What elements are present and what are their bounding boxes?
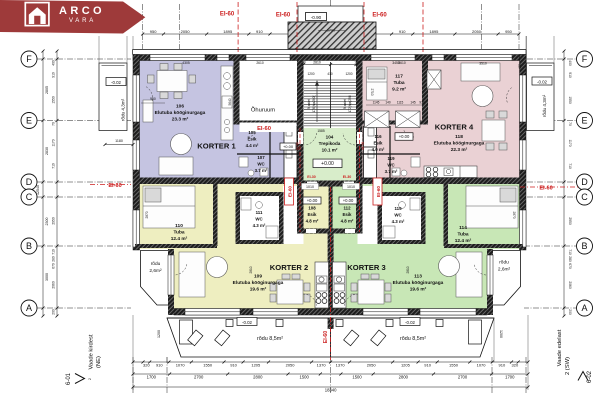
svg-text:E: E bbox=[26, 116, 32, 126]
svg-text:9.2 m²: 9.2 m² bbox=[392, 87, 406, 93]
svg-text:106: 106 bbox=[176, 104, 184, 110]
svg-text:1145: 1145 bbox=[373, 101, 380, 105]
svg-text:EI-60: EI-60 bbox=[257, 126, 271, 132]
svg-text:200: 200 bbox=[52, 309, 56, 315]
svg-text:1500: 1500 bbox=[299, 375, 309, 380]
svg-text:950: 950 bbox=[505, 29, 512, 34]
svg-text:Vaade kirdest: Vaade kirdest bbox=[89, 334, 95, 369]
svg-text:EI-60: EI-60 bbox=[276, 13, 291, 19]
svg-text:1010: 1010 bbox=[306, 185, 314, 189]
svg-text:470: 470 bbox=[136, 64, 140, 70]
svg-text:1010: 1010 bbox=[347, 185, 355, 189]
svg-text:Esik: Esik bbox=[307, 212, 317, 217]
svg-text:176(h)x280(: 176(h)x280( bbox=[312, 94, 316, 112]
svg-text:200: 200 bbox=[568, 309, 572, 315]
svg-text:400: 400 bbox=[52, 60, 56, 66]
svg-text:4.8 m²: 4.8 m² bbox=[306, 219, 319, 224]
svg-text:9 astet: 9 astet bbox=[343, 99, 347, 109]
svg-text:+0.00: +0.00 bbox=[343, 198, 354, 203]
svg-text:Esik: Esik bbox=[373, 141, 383, 146]
svg-text:KORTER 4: KORTER 4 bbox=[435, 123, 474, 132]
svg-text:3.7 m²: 3.7 m² bbox=[385, 169, 398, 174]
svg-text:A: A bbox=[26, 303, 32, 313]
svg-text:2710: 2710 bbox=[370, 88, 374, 95]
svg-text:1500: 1500 bbox=[352, 375, 362, 380]
svg-text:1070: 1070 bbox=[176, 363, 186, 368]
svg-text:-0.02: -0.02 bbox=[537, 79, 548, 84]
svg-text:400: 400 bbox=[568, 60, 572, 66]
svg-text:3000: 3000 bbox=[45, 273, 49, 281]
svg-text:910: 910 bbox=[52, 72, 56, 78]
svg-text:1115: 1115 bbox=[397, 101, 404, 105]
svg-text:+0.00: +0.00 bbox=[283, 144, 294, 149]
svg-text:1180: 1180 bbox=[115, 139, 123, 143]
svg-text:Esik: Esik bbox=[247, 137, 257, 142]
svg-text:410: 410 bbox=[327, 72, 333, 76]
svg-text:105: 105 bbox=[248, 130, 256, 135]
svg-text:+0.00: +0.00 bbox=[321, 161, 334, 167]
svg-text:2610: 2610 bbox=[398, 61, 406, 65]
svg-text:1205: 1205 bbox=[251, 363, 261, 368]
svg-text:Elutuba kööginurgaga: Elutuba kööginurgaga bbox=[233, 280, 284, 286]
svg-text:1200: 1200 bbox=[157, 330, 161, 338]
svg-text:23.3 m²: 23.3 m² bbox=[172, 117, 189, 123]
svg-text:rõdu: rõdu bbox=[499, 260, 509, 266]
svg-text:F: F bbox=[582, 54, 588, 64]
svg-text:1370: 1370 bbox=[317, 363, 327, 368]
svg-text:B: B bbox=[26, 241, 32, 251]
svg-text:2950: 2950 bbox=[52, 217, 56, 225]
svg-text:190: 190 bbox=[354, 60, 360, 64]
svg-text:Trepikoda: Trepikoda bbox=[319, 141, 341, 146]
svg-text:3.7 m²: 3.7 m² bbox=[255, 168, 268, 173]
svg-text:116: 116 bbox=[374, 134, 382, 139]
svg-text:rõdu 8,5m²: rõdu 8,5m² bbox=[400, 336, 426, 342]
svg-text:-0.02: -0.02 bbox=[405, 320, 416, 325]
svg-text:113: 113 bbox=[414, 274, 422, 280]
svg-text:EI-60: EI-60 bbox=[220, 12, 235, 18]
svg-text:19.6 m²: 19.6 m² bbox=[410, 287, 427, 293]
svg-text:6790: 6790 bbox=[327, 29, 335, 33]
svg-text:910: 910 bbox=[156, 363, 163, 368]
svg-text:710: 710 bbox=[52, 249, 56, 255]
svg-text:910: 910 bbox=[424, 363, 431, 368]
svg-text:107: 107 bbox=[257, 155, 265, 160]
svg-text:910: 910 bbox=[230, 363, 237, 368]
svg-text:EI-60: EI-60 bbox=[288, 186, 293, 197]
svg-text:-0.02: -0.02 bbox=[242, 320, 253, 325]
svg-text:6-01: 6-01 bbox=[66, 372, 72, 385]
svg-text:280: 280 bbox=[52, 256, 56, 262]
svg-text:Õhuruum: Õhuruum bbox=[251, 107, 275, 114]
svg-text:EI-60: EI-60 bbox=[108, 183, 121, 189]
svg-text:320: 320 bbox=[512, 363, 519, 368]
svg-text:EI-60: EI-60 bbox=[539, 186, 552, 192]
svg-text:EI-30: EI-30 bbox=[361, 142, 365, 150]
svg-text:1895: 1895 bbox=[223, 29, 233, 34]
svg-text:119: 119 bbox=[387, 156, 395, 161]
svg-text:12.4 m²: 12.4 m² bbox=[455, 238, 472, 244]
svg-text:12.4 m²: 12.4 m² bbox=[171, 236, 188, 242]
svg-text:-0.02: -0.02 bbox=[111, 80, 122, 85]
svg-text:4305: 4305 bbox=[182, 61, 190, 65]
svg-text:140: 140 bbox=[385, 101, 391, 105]
svg-text:2700: 2700 bbox=[194, 375, 204, 380]
svg-text:Tuba: Tuba bbox=[393, 80, 404, 86]
svg-text:2950: 2950 bbox=[568, 217, 572, 225]
svg-text:EI-60: EI-60 bbox=[376, 186, 381, 197]
svg-text:1585: 1585 bbox=[317, 129, 325, 133]
svg-text:2: 2 bbox=[88, 378, 92, 380]
svg-text:rõdu 8,5m²: rõdu 8,5m² bbox=[257, 336, 283, 342]
svg-text:KORTER 3: KORTER 3 bbox=[347, 263, 385, 272]
svg-text:VARA: VARA bbox=[69, 18, 96, 24]
svg-text:4.0 m²: 4.0 m² bbox=[372, 147, 385, 152]
svg-text:190: 190 bbox=[300, 60, 306, 64]
svg-text:WC: WC bbox=[394, 213, 402, 218]
svg-text:117: 117 bbox=[395, 74, 403, 80]
svg-text:1895: 1895 bbox=[429, 29, 439, 34]
svg-text:950: 950 bbox=[150, 97, 156, 101]
svg-text:1370: 1370 bbox=[336, 363, 346, 368]
svg-text:2050: 2050 bbox=[286, 363, 296, 368]
svg-text:1700: 1700 bbox=[147, 375, 157, 380]
svg-text:+0.00: +0.00 bbox=[399, 134, 410, 139]
svg-text:WC: WC bbox=[257, 162, 265, 167]
svg-text:Elutuba kööginurgaga: Elutuba kööginurgaga bbox=[434, 141, 485, 147]
svg-text:109: 109 bbox=[254, 274, 262, 280]
svg-text:1200: 1200 bbox=[345, 72, 352, 76]
svg-text:10.1 m²: 10.1 m² bbox=[322, 148, 338, 153]
svg-text:910: 910 bbox=[399, 29, 406, 34]
svg-text:rõdu: rõdu bbox=[151, 261, 161, 267]
svg-text:D: D bbox=[581, 177, 588, 187]
svg-text:18340: 18340 bbox=[325, 388, 337, 393]
svg-text:5640: 5640 bbox=[228, 98, 232, 105]
svg-text:WC: WC bbox=[387, 163, 395, 168]
svg-text:2060: 2060 bbox=[568, 281, 572, 289]
svg-text:470: 470 bbox=[518, 64, 522, 70]
svg-text:Tuba: Tuba bbox=[457, 232, 468, 238]
svg-text:710: 710 bbox=[568, 249, 572, 255]
svg-text:6-02: 6-02 bbox=[587, 370, 593, 383]
svg-text:2870: 2870 bbox=[145, 211, 149, 218]
svg-text:EI-60: EI-60 bbox=[372, 13, 387, 19]
svg-text:112: 112 bbox=[343, 206, 351, 211]
svg-text:2810: 2810 bbox=[249, 266, 253, 273]
svg-text:110: 110 bbox=[175, 223, 183, 229]
svg-text:111: 111 bbox=[256, 210, 263, 215]
svg-text:KORTER 2: KORTER 2 bbox=[270, 263, 308, 272]
svg-text:KORTER 1: KORTER 1 bbox=[197, 142, 236, 151]
svg-text:1550: 1550 bbox=[449, 363, 459, 368]
svg-text:118: 118 bbox=[455, 134, 463, 140]
svg-text:9 astet: 9 astet bbox=[307, 99, 311, 109]
svg-text:670: 670 bbox=[568, 263, 572, 269]
svg-text:EI-60: EI-60 bbox=[323, 331, 329, 344]
svg-text:2800: 2800 bbox=[399, 375, 409, 380]
svg-text:320: 320 bbox=[143, 363, 150, 368]
svg-text:B: B bbox=[581, 241, 587, 251]
svg-text:910: 910 bbox=[568, 72, 572, 78]
svg-text:172(h)x(280: 172(h)x(280 bbox=[348, 95, 352, 112]
svg-text:1550: 1550 bbox=[568, 96, 572, 104]
svg-text:1200: 1200 bbox=[307, 72, 314, 76]
svg-text:Esik: Esik bbox=[342, 212, 352, 217]
svg-text:(NE): (NE) bbox=[96, 356, 102, 368]
svg-text:2,6m²: 2,6m² bbox=[498, 267, 511, 273]
svg-text:E: E bbox=[581, 116, 587, 126]
svg-text:Elutuba kööginurgaga: Elutuba kööginurgaga bbox=[155, 110, 206, 116]
svg-text:4.8 m²: 4.8 m² bbox=[341, 219, 354, 224]
svg-text:4.4 m²: 4.4 m² bbox=[246, 143, 259, 148]
svg-text:19.6 m²: 19.6 m² bbox=[250, 287, 267, 293]
svg-text:A: A bbox=[581, 303, 587, 313]
svg-text:2 (SW): 2 (SW) bbox=[565, 357, 571, 375]
svg-text:2805: 2805 bbox=[45, 86, 49, 94]
svg-text:22.3 m²: 22.3 m² bbox=[451, 147, 468, 153]
svg-text:-0.90: -0.90 bbox=[311, 15, 322, 20]
svg-text:rõdu 4,3m²: rõdu 4,3m² bbox=[542, 94, 547, 117]
svg-text:280: 280 bbox=[568, 256, 572, 262]
svg-text:EI-30: EI-30 bbox=[307, 175, 316, 179]
svg-text:1550: 1550 bbox=[203, 363, 213, 368]
svg-text:2610: 2610 bbox=[256, 61, 264, 65]
svg-text:+0.00: +0.00 bbox=[307, 198, 318, 203]
svg-text:1550: 1550 bbox=[52, 96, 56, 104]
svg-text:2810: 2810 bbox=[406, 266, 410, 273]
svg-text:910: 910 bbox=[256, 29, 263, 34]
svg-text:2700: 2700 bbox=[458, 375, 468, 380]
svg-text:D: D bbox=[26, 177, 33, 187]
svg-text:Tuba: Tuba bbox=[173, 230, 184, 236]
svg-text:WC: WC bbox=[255, 217, 263, 222]
svg-text:2050: 2050 bbox=[181, 29, 191, 34]
svg-text:2800: 2800 bbox=[253, 375, 263, 380]
svg-text:910: 910 bbox=[419, 101, 425, 105]
svg-text:710: 710 bbox=[568, 163, 572, 169]
svg-text:EI-30: EI-30 bbox=[343, 175, 352, 179]
svg-text:3510: 3510 bbox=[479, 62, 487, 66]
svg-text:1700: 1700 bbox=[505, 375, 515, 380]
svg-text:1200: 1200 bbox=[499, 330, 503, 338]
svg-text:1205: 1205 bbox=[401, 363, 411, 368]
svg-text:1170: 1170 bbox=[52, 139, 56, 146]
svg-text:1070: 1070 bbox=[477, 363, 487, 368]
svg-text:ARCO: ARCO bbox=[59, 5, 105, 17]
svg-text:115: 115 bbox=[394, 206, 402, 211]
svg-text:70: 70 bbox=[568, 122, 572, 126]
svg-text:2810: 2810 bbox=[313, 60, 321, 64]
svg-text:114: 114 bbox=[459, 225, 467, 231]
svg-text:Vaade edelast: Vaade edelast bbox=[557, 329, 563, 366]
svg-text:108: 108 bbox=[308, 206, 316, 211]
svg-text:C: C bbox=[26, 192, 33, 202]
svg-text:4.3 m²: 4.3 m² bbox=[253, 223, 266, 228]
svg-text:2830: 2830 bbox=[45, 147, 49, 155]
svg-text:710: 710 bbox=[52, 163, 56, 169]
svg-text:910: 910 bbox=[499, 363, 506, 368]
svg-text:2300: 2300 bbox=[45, 218, 49, 226]
svg-text:104: 104 bbox=[326, 135, 334, 140]
svg-text:2050: 2050 bbox=[472, 29, 482, 34]
svg-text:Elutuba kööginurgaga: Elutuba kööginurgaga bbox=[393, 280, 444, 286]
svg-text:670: 670 bbox=[52, 263, 56, 269]
svg-text:1170: 1170 bbox=[568, 139, 572, 146]
svg-text:70: 70 bbox=[52, 122, 56, 126]
svg-text:2,6m²: 2,6m² bbox=[149, 268, 162, 274]
svg-text:C: C bbox=[581, 192, 588, 202]
svg-text:950: 950 bbox=[150, 29, 157, 34]
svg-text:F: F bbox=[26, 54, 32, 64]
svg-text:2060: 2060 bbox=[52, 281, 56, 289]
svg-text:2870: 2870 bbox=[512, 211, 516, 218]
svg-text:145: 145 bbox=[410, 101, 416, 105]
svg-text:4.3 m²: 4.3 m² bbox=[392, 219, 405, 224]
svg-text:2050: 2050 bbox=[367, 363, 377, 368]
svg-text:rõdu 4,3m²: rõdu 4,3m² bbox=[121, 98, 126, 121]
